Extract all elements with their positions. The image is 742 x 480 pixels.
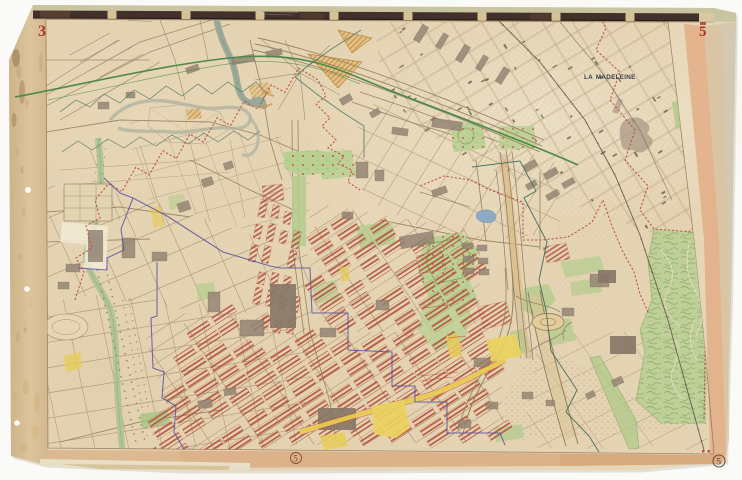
svg-text:5: 5 — [716, 458, 721, 468]
svg-text:3: 3 — [38, 23, 46, 40]
svg-text:5: 5 — [699, 24, 707, 40]
svg-text:LA MADELEINE: LA MADELEINE — [584, 74, 636, 81]
svg-text:5: 5 — [293, 454, 298, 464]
